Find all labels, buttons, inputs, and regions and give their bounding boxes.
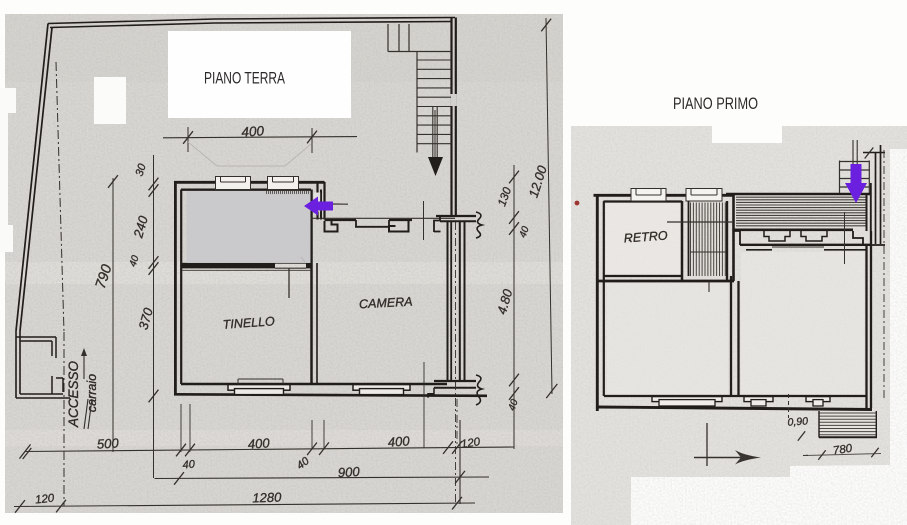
- svg-text:CAMERA: CAMERA: [359, 295, 413, 312]
- svg-text:40: 40: [182, 458, 196, 471]
- svg-text:PIANO PRIMO: PIANO PRIMO: [673, 94, 758, 113]
- svg-text:400: 400: [241, 123, 265, 140]
- svg-text:500: 500: [97, 435, 120, 451]
- svg-text:.: .: [628, 230, 631, 244]
- svg-text:400: 400: [247, 435, 270, 452]
- svg-text:PIANO TERRA: PIANO TERRA: [204, 69, 285, 88]
- svg-text:0,90: 0,90: [787, 415, 808, 428]
- svg-text:1280: 1280: [252, 489, 282, 505]
- svg-text:900: 900: [338, 464, 361, 480]
- svg-text:ACCESSO: ACCESSO: [66, 360, 81, 428]
- svg-text:400: 400: [387, 433, 410, 450]
- svg-text:120: 120: [35, 492, 56, 506]
